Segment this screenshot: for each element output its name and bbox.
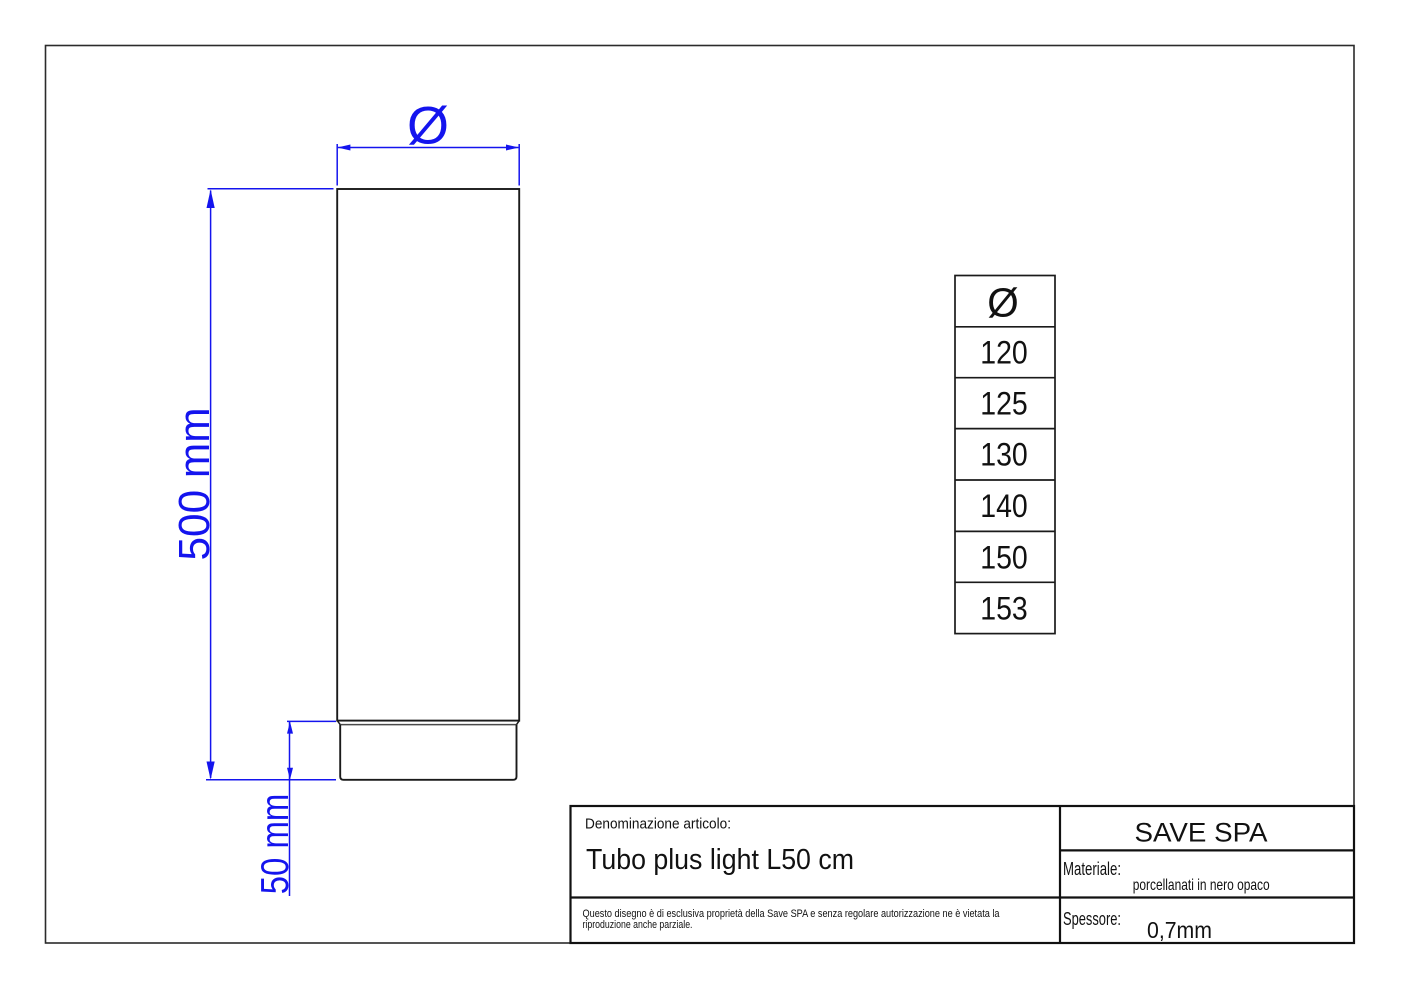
svg-text:SAVE SPA: SAVE SPA <box>1135 817 1268 847</box>
svg-text:Questo disegno è di esclusiva: Questo disegno è di esclusiva proprietà … <box>583 908 1000 920</box>
svg-text:150: 150 <box>980 539 1028 575</box>
svg-text:Denominazione articolo:: Denominazione articolo: <box>585 816 731 832</box>
svg-text:0,7mm: 0,7mm <box>1147 917 1212 943</box>
svg-text:Materiale:: Materiale: <box>1063 859 1121 879</box>
svg-text:120: 120 <box>980 335 1028 371</box>
svg-text:140: 140 <box>980 488 1028 524</box>
svg-text:153: 153 <box>980 590 1028 626</box>
svg-text:porcellanati in nero opaco: porcellanati in nero opaco <box>1133 877 1270 894</box>
svg-text:50 mm: 50 mm <box>254 794 297 895</box>
svg-text:Spessore:: Spessore: <box>1063 909 1121 929</box>
svg-text:500 mm: 500 mm <box>170 408 219 561</box>
svg-text:Ø: Ø <box>407 97 449 156</box>
svg-text:Tubo plus light L50 cm: Tubo plus light L50 cm <box>586 844 854 876</box>
svg-text:Ø: Ø <box>987 280 1019 326</box>
svg-text:riproduzione anche parziale.: riproduzione anche parziale. <box>583 919 693 931</box>
svg-text:130: 130 <box>980 437 1028 473</box>
svg-text:125: 125 <box>980 386 1028 422</box>
